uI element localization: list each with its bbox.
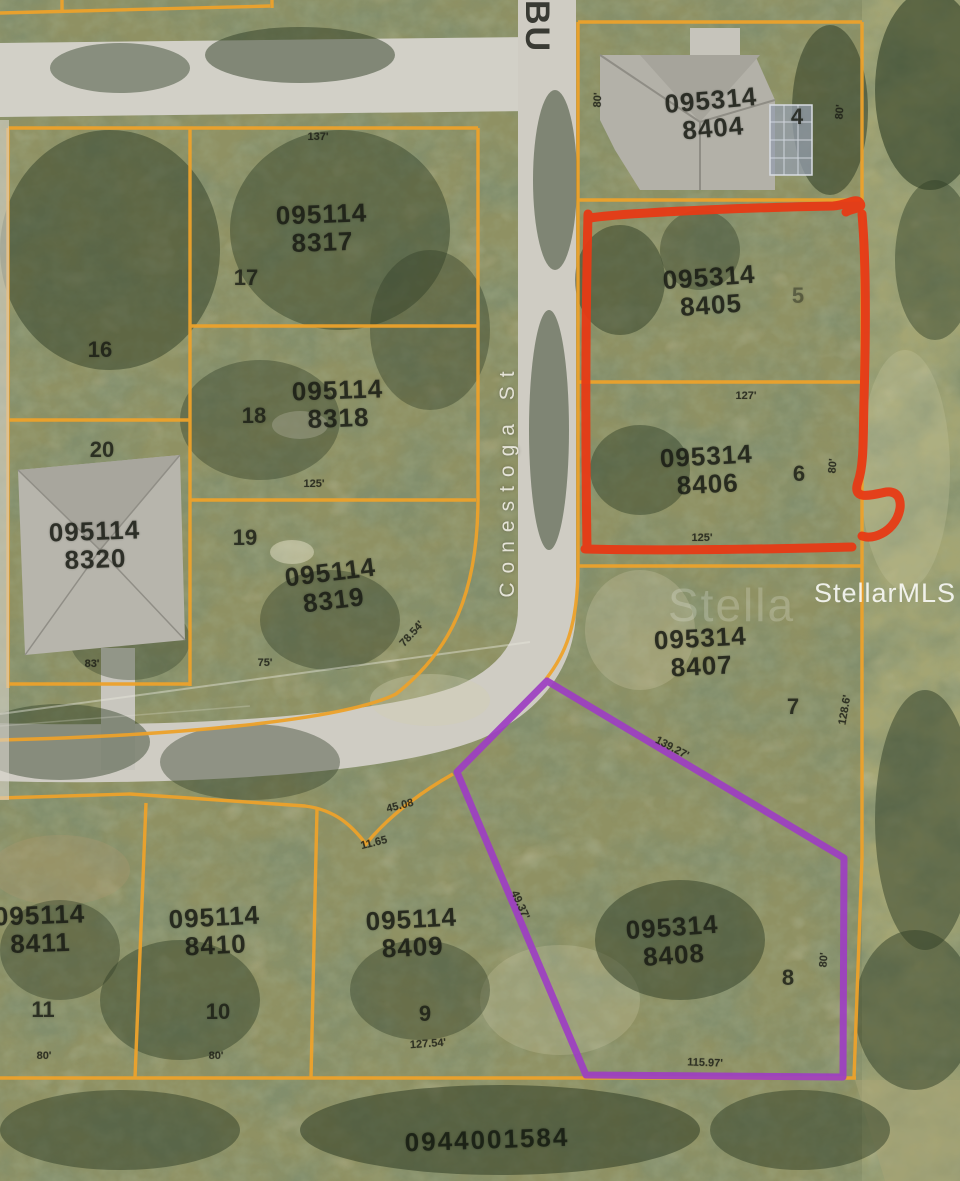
watermark-ghost: Stella — [668, 578, 795, 632]
left-edge-strip — [0, 120, 9, 800]
street-label-top-partial: BU — [517, 0, 556, 53]
aerial-parcel-map: Conestoga St BU 095114 8317 095114 8318 … — [0, 0, 960, 1181]
watermark-stellar-mls: StellarMLS — [814, 578, 956, 609]
house-8320 — [18, 455, 185, 655]
pool-enclosure — [770, 105, 812, 175]
